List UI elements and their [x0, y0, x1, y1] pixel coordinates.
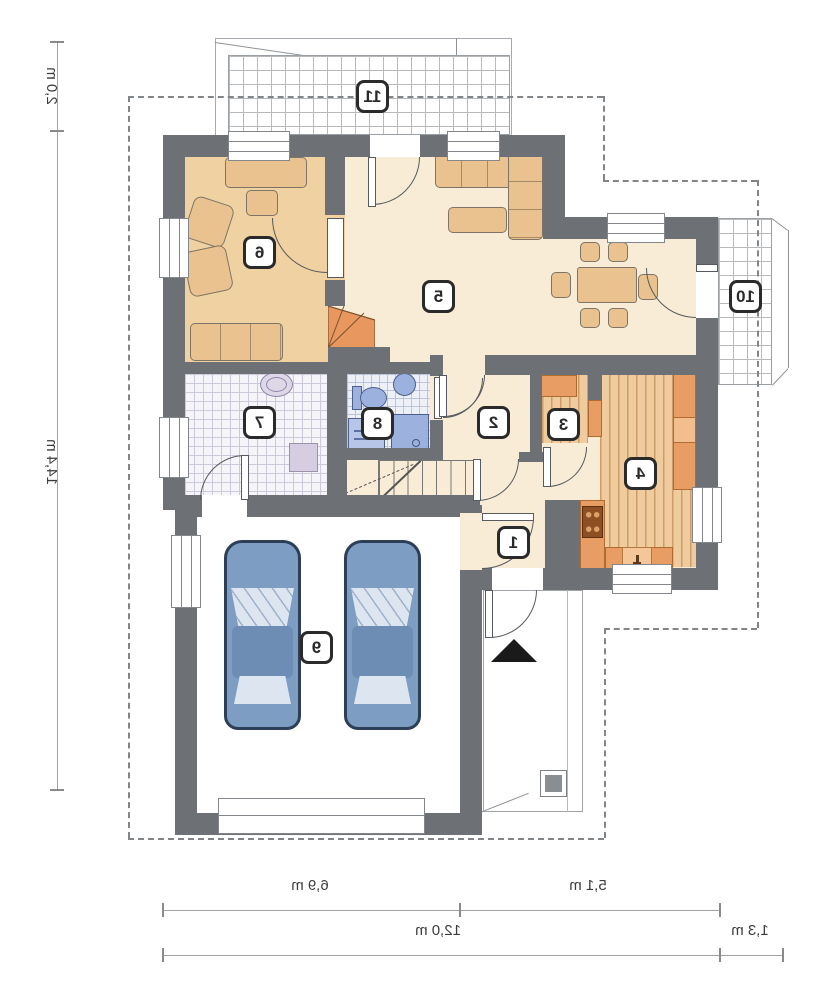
- doormat-inner: [545, 775, 562, 792]
- car-roof: [232, 626, 293, 678]
- roof-diagonal-line: [772, 368, 789, 385]
- dimension-tick: [459, 903, 461, 917]
- property-line: [604, 628, 606, 838]
- dimension-tick: [50, 41, 64, 43]
- pantry-shelf: [537, 375, 577, 397]
- dimension-tick: [162, 903, 164, 917]
- door-leaf: [241, 455, 249, 500]
- pantry-cabinet: [588, 400, 602, 437]
- entrance-arrow-icon: [491, 639, 537, 662]
- dimension-label-bottom-total: 12,0 m: [398, 922, 478, 942]
- window: [612, 564, 672, 594]
- dining-chair: [608, 242, 628, 262]
- car-rear-window: [234, 676, 291, 704]
- door-leaf: [368, 157, 376, 207]
- utility-basin-inner: [266, 377, 287, 392]
- dimension-label-bottom-offset: 1,3 m: [710, 922, 790, 942]
- wall: [543, 157, 565, 239]
- window: [692, 487, 722, 543]
- window: [159, 417, 189, 478]
- desk: [225, 157, 307, 188]
- property-line: [603, 180, 757, 182]
- faucet-icon: [636, 555, 639, 563]
- car: [224, 540, 301, 730]
- stove-burners-icon: [582, 506, 603, 538]
- property-line: [603, 96, 605, 180]
- armchair: [182, 244, 235, 298]
- room-label-3: 3: [547, 408, 580, 441]
- floor-plan: 1 2 3 4 5 6 7 8 9 10 11 2,0 m 14,4 m 6,9…: [0, 0, 835, 1000]
- partition-wall: [588, 362, 602, 400]
- room-label-4: 4: [624, 457, 657, 490]
- room-label-1: 1: [497, 526, 530, 559]
- partition-wall: [530, 362, 542, 460]
- floor-mat: [289, 443, 318, 472]
- corner-sofa-side: [508, 153, 543, 240]
- dimension-tick: [162, 948, 164, 962]
- car-rear-window: [354, 676, 411, 704]
- dimension-label-bottom-right: 5,1 m: [548, 877, 628, 897]
- door-leaf: [439, 375, 447, 417]
- shower-drain-icon: [412, 439, 420, 447]
- property-line: [604, 628, 757, 630]
- desk-chair: [246, 190, 278, 216]
- dimension-tick: [782, 948, 784, 962]
- dimension-label-bottom-left: 6,9 m: [270, 877, 350, 897]
- coffee-table: [448, 207, 507, 233]
- dining-chair: [580, 308, 600, 328]
- dimension-label-left-upper: 2,0 m: [40, 56, 60, 116]
- car-windshield: [351, 588, 414, 628]
- door-opening: [460, 513, 482, 570]
- room-label-7: 7: [243, 406, 276, 439]
- dimension-line-bottom-upper: [163, 910, 720, 911]
- partition-wall: [519, 452, 545, 462]
- terrace-10-roof-edge: [788, 230, 789, 368]
- door-leaf: [696, 264, 718, 272]
- dimension-tick: [719, 903, 721, 917]
- door-leaf: [543, 447, 551, 487]
- door-leaf: [473, 459, 481, 501]
- property-line: [128, 838, 604, 840]
- dimension-tick: [50, 789, 64, 791]
- dimension-line-left: [57, 42, 58, 790]
- door-leaf: [327, 218, 344, 278]
- room-label-5: 5: [422, 280, 455, 313]
- room-label-6: 6: [243, 236, 276, 269]
- dining-chair: [551, 272, 571, 298]
- dining-chair: [608, 308, 628, 328]
- window: [171, 535, 201, 608]
- property-line: [757, 180, 759, 628]
- sofa: [190, 323, 283, 361]
- roof-diagonal-line: [771, 218, 788, 231]
- garage-door: [218, 798, 425, 834]
- door-leaf: [485, 590, 493, 638]
- window: [607, 213, 665, 243]
- dimension-tick: [50, 130, 64, 132]
- window: [159, 218, 189, 278]
- partition-wall: [430, 355, 443, 365]
- washbasin: [393, 373, 416, 396]
- partition-wall: [327, 362, 347, 495]
- room-label-11: 11: [356, 80, 389, 113]
- window: [447, 131, 500, 161]
- kitchen-appliance: [673, 417, 696, 443]
- dimension-line-bottom-lower: [163, 955, 783, 956]
- dining-chair: [580, 242, 600, 262]
- car-windshield: [231, 588, 294, 628]
- room-label-10: 10: [729, 280, 762, 313]
- room-label-9: 9: [300, 631, 333, 664]
- toilet-bowl: [360, 387, 387, 409]
- door-opening: [492, 568, 543, 590]
- door-opening: [696, 268, 718, 318]
- car-roof: [352, 626, 413, 678]
- dimension-tick: [719, 948, 721, 962]
- staircase-treads: [378, 460, 478, 500]
- porch-edge-line: [567, 590, 568, 812]
- winder-stairs: [328, 306, 375, 348]
- window: [228, 131, 290, 161]
- wall: [163, 135, 565, 157]
- dining-table: [577, 267, 637, 303]
- room-label-8: 8: [361, 407, 394, 440]
- door-leaf: [482, 513, 534, 521]
- dimension-label-left-main: 14,4 m: [40, 432, 60, 492]
- room-label-2: 2: [477, 406, 510, 439]
- property-line: [128, 96, 130, 838]
- car: [344, 540, 421, 730]
- chimney-block: [545, 500, 580, 570]
- door-opening: [370, 135, 420, 157]
